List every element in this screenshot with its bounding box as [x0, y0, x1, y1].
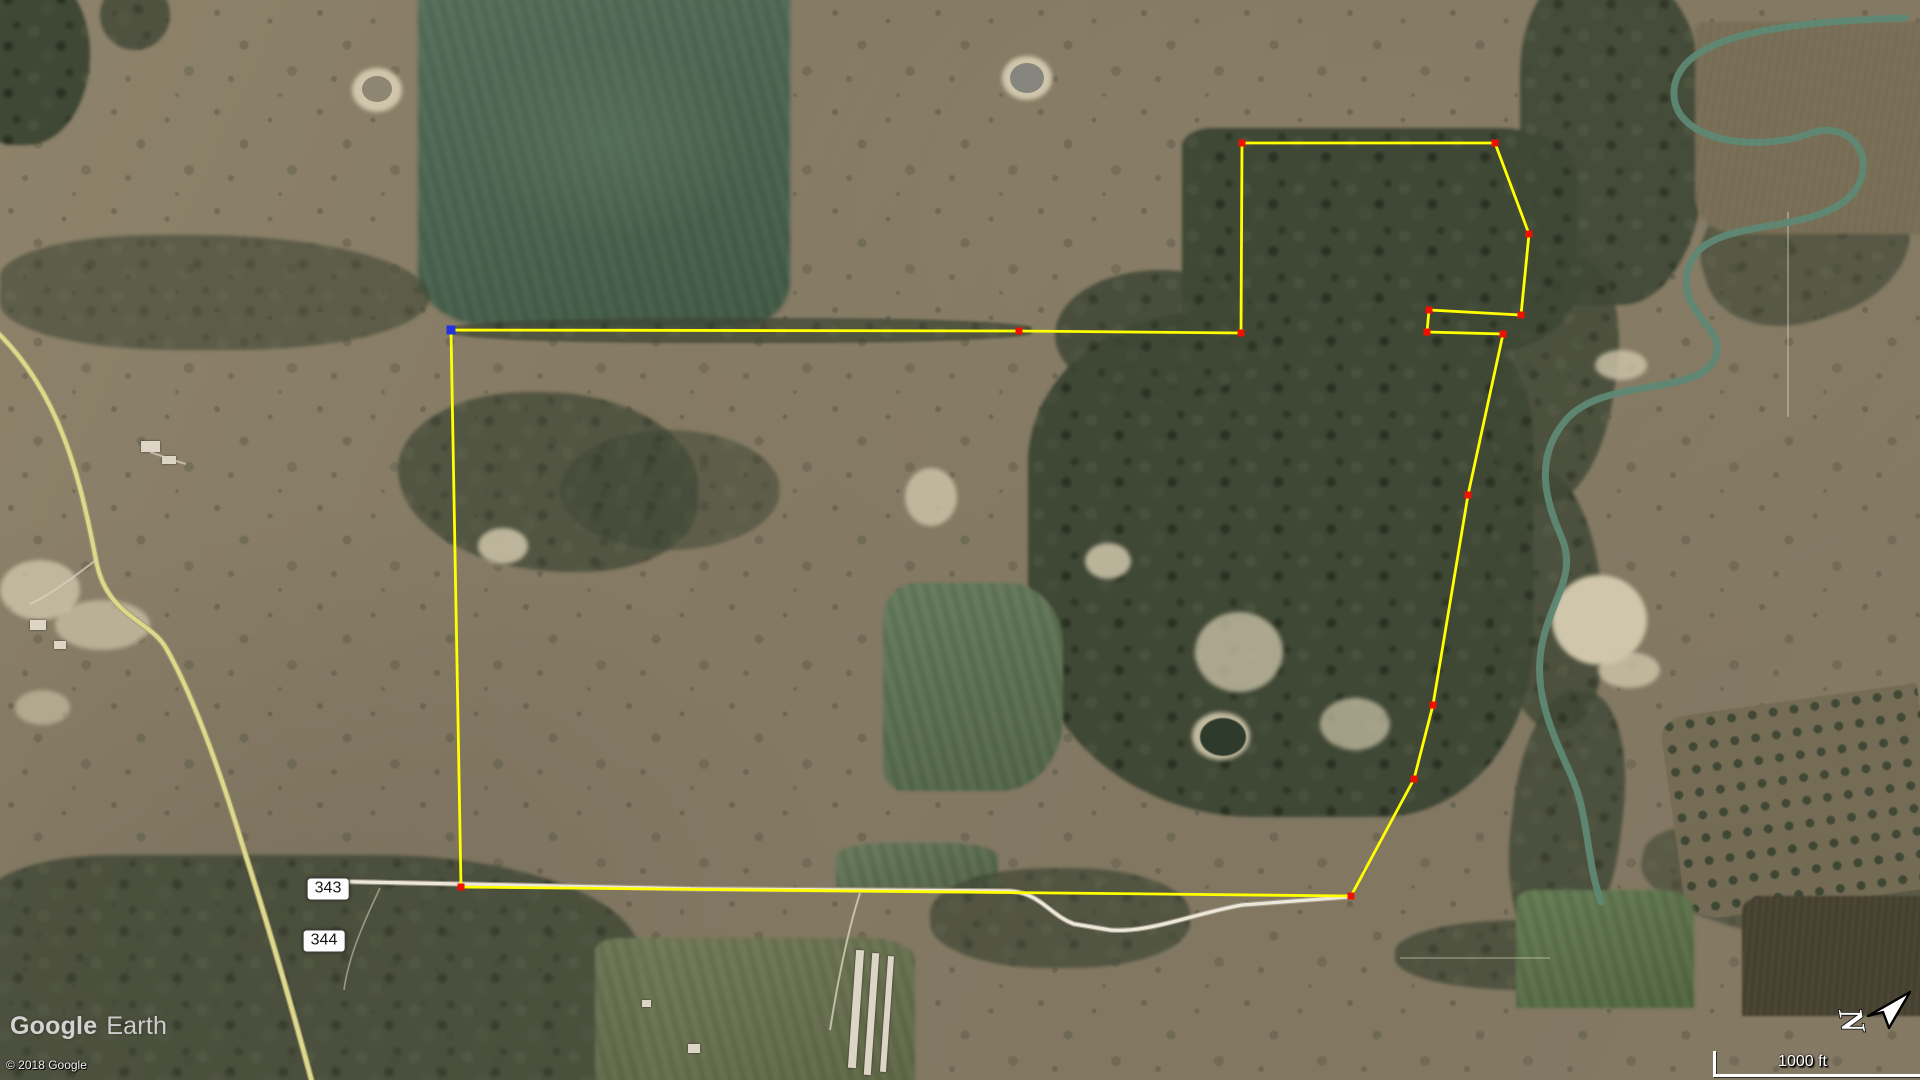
north-letter: N [1831, 1004, 1872, 1037]
scale-bar-label: 1000 ft [1778, 1053, 1827, 1071]
boundary-vertex[interactable] [1348, 893, 1355, 900]
logo-google: Google [10, 1012, 97, 1040]
boundary-vertex[interactable] [1424, 329, 1431, 336]
boundary-vertex[interactable] [1411, 776, 1418, 783]
boundary-vertex[interactable] [1526, 231, 1533, 238]
boundary-vertex[interactable] [1238, 330, 1245, 337]
north-compass[interactable]: N [1822, 986, 1917, 1048]
boundary-vertex[interactable] [1518, 312, 1525, 319]
boundary-vertex[interactable] [1430, 702, 1437, 709]
parcel-boundary-layer [0, 0, 1920, 1080]
boundary-vertex[interactable] [1500, 331, 1507, 338]
map-viewport[interactable]: 343344 GoogleEarth © 2018 Google N 1000 … [0, 0, 1920, 1080]
boundary-vertex[interactable] [1426, 307, 1433, 314]
road-shield-344: 344 [303, 930, 346, 953]
scale-bar: 1000 ft [1713, 1051, 1920, 1077]
road-shield-343: 343 [307, 878, 350, 901]
boundary-start-vertex[interactable] [447, 326, 456, 335]
boundary-line [451, 143, 1529, 896]
copyright-text: © 2018 Google [6, 1058, 87, 1072]
boundary-vertex[interactable] [1016, 328, 1023, 335]
boundary-vertex[interactable] [1492, 140, 1499, 147]
north-arrow-icon [1868, 992, 1910, 1028]
google-earth-logo: GoogleEarth [10, 1012, 167, 1041]
logo-earth: Earth [106, 1012, 167, 1040]
boundary-vertex[interactable] [1465, 492, 1472, 499]
boundary-vertex[interactable] [1239, 140, 1246, 147]
boundary-vertex[interactable] [458, 884, 465, 891]
